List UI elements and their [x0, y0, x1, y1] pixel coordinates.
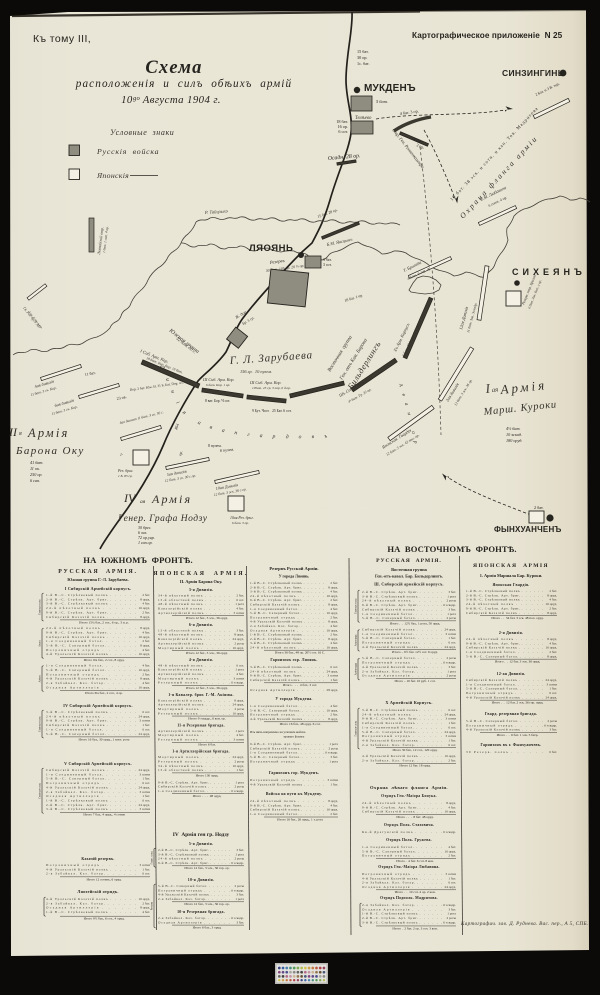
svg-text:ЛЯОЯНЬ: ЛЯОЯНЬ [249, 243, 293, 254]
svg-text:Армія: Армія [27, 426, 70, 440]
svg-text:Сибирскій Казачій полкъ . .: Сибирскій Казачій полкъ . . . . . . [466, 611, 543, 615]
svg-text:5-й В.-С. Саперный батал. . .: 5-й В.-С. Саперный батал. . . . . . . [46, 732, 136, 736]
svg-text:24 оруд.: 24 оруд. [139, 732, 151, 736]
svg-text:Осадная Артиллерія . . . .: Осадная Артиллерія . . . . . . [250, 688, 324, 692]
svg-text:Кв-й Драгунскій полкъ . . .: Кв-й Драгунскій полкъ . . . . . . [362, 830, 442, 834]
svg-text:Армія: Армія [151, 492, 192, 506]
svg-text:Ляохейскій отрядъ.: Ляохейскій отрядъ. [77, 889, 118, 894]
svg-text:Гвард. резервная бригада.: Гвард. резервная бригада. [485, 712, 537, 716]
svg-text:2-я Забайкал. Каз. батар. . .: 2-я Забайкал. Каз. батар. . . . . . . [158, 897, 230, 901]
svg-text:Рез. бриг.: Рез. бриг. [117, 469, 133, 473]
svg-text:Главныя силы: Главныя силы [355, 598, 358, 614]
svg-text:39 Резерв. полкъ . . . . .: 39 Резерв. полкъ . . . . . . [466, 750, 543, 754]
svg-text:1-й В.-С. Стрѣлковый полкъ .: 1-й В.-С. Стрѣлковый полкъ . . . . . . [46, 910, 136, 914]
svg-text:2-я Дивизія.: 2-я Дивизія. [499, 631, 523, 635]
svg-text:4-я Дивизія.: 4-я Дивизія. [189, 658, 213, 662]
svg-text:У города Мукдена.: У города Мукдена. [275, 697, 312, 701]
svg-text:4-й Уральскій Казачій полкъ .: 4-й Уральскій Казачій полкъ . . . . . . [362, 645, 442, 649]
svg-text:6 эскадр.: 6 эскадр. [231, 681, 244, 685]
svg-text:Пограничный отрядъ . . . .: Пограничный отрядъ . . . . . . [250, 759, 324, 763]
svg-text:8 оруд.: 8 оруд. [140, 615, 150, 619]
svg-text:расположенія и силъ обѣихъ: расположенія и силъ обѣихъ армій [75, 78, 292, 90]
svg-text:У города Ляоянь.: У города Ляоянь. [279, 575, 310, 579]
svg-text:Южная группа Г.-Л. Зарубаева.: Южная группа Г.-Л. Зарубаева. [67, 577, 128, 582]
svg-text:Итого . . 12 бат. 2 эск. 36: Итого . . 12 бат. 2 эск. 36 гор. оруд. [492, 701, 544, 705]
svg-text:Итого . . . 8 бат. 48 оруд.: Итого . . . 8 бат. 48 оруд. [396, 815, 433, 819]
svg-text:4 бат.: 4 бат. [142, 910, 150, 914]
svg-text:Итого . 2 бат. 2 ор. 3 сот. 3: Итого . 2 бат. 2 ор. 3 сот. 3 кон. [392, 926, 437, 930]
svg-text:6 сот.: 6 сот. [338, 129, 348, 134]
svg-text:Главныя силы: Главныя силы [39, 599, 42, 615]
svg-text:10ᵍᵒ Августа 1904 г.: 10ᵍᵒ Августа 1904 г. [121, 94, 221, 106]
svg-text:3-й В.-С. Стрѣлковый полкъ .: 3-й В.-С. Стрѣлковый полкъ . . . . . . [46, 807, 136, 811]
svg-text:Ген.-отъ-кавал. Бар. Бильдерли: Ген.-отъ-кавал. Бар. Бильдерлингъ. [375, 574, 443, 579]
svg-text:СИХЕЯНЪ: СИХЕЯНЪ [512, 267, 586, 277]
svg-text:Главныя силы: Главныя силы [39, 716, 42, 732]
svg-text:5-й В.-С. Саперный батал. . .: 5-й В.-С. Саперный батал. . . . . . . [362, 616, 442, 620]
svg-text:Итого 12 бат. 18 оруд.: Итого 12 бат. 18 оруд. [399, 764, 431, 768]
svg-text:1 Б. 83 ср.: 1 Б. 83 ср. [118, 474, 133, 478]
svg-text:2 роты: 2 роты [446, 616, 456, 620]
svg-text:6 эскадр.: 6 эскадр. [231, 861, 244, 865]
svg-text:1 бат.: 1 бат. [236, 768, 244, 772]
svg-text:16 оруд.: 16 оруд. [327, 646, 339, 650]
svg-text:2-я Забайкал. Каз. батар. . .: 2-я Забайкал. Каз. батар. . . . . . . [362, 743, 442, 747]
svg-text:3 бат.: 3 бат. [236, 920, 244, 924]
svg-text:Резервный полкъ . . . . .: Резервный полкъ . . . . . . [158, 711, 230, 715]
svg-text:РУССКАЯ АРМІЯ.: РУССКАЯ АРМІЯ. [376, 558, 442, 564]
svg-text:1 рота: 1 рота [329, 759, 338, 763]
svg-text:ая: ая [491, 386, 498, 394]
svg-text:41 бат.: 41 бат. [30, 460, 44, 465]
svg-text:6 эскадр.: 6 эскадр. [443, 830, 456, 834]
svg-text:2-я Забайкал. Каз. батар. . .: 2-я Забайкал. Каз. батар. . . . . . . [46, 872, 136, 876]
svg-text:4-й Уральскій Казачій полкъ .: 4-й Уральскій Казачій полкъ . . . . . . [466, 695, 543, 699]
svg-text:24 оруд.: 24 оруд. [546, 695, 558, 699]
svg-text:Картографич. зав. Д. Руднева.: Картографич. зав. Д. Руднева. Вас. пер.,… [460, 920, 588, 927]
svg-text:16 оруд.: 16 оруд. [233, 711, 245, 715]
svg-text:Отрядъ Полк. Стаховича.: Отрядъ Полк. Стаховича. [384, 823, 434, 827]
svg-text:ая: ая [140, 499, 146, 505]
svg-text:13-й областной полкъ . . .: 13-й областной полкъ . . . . . . [158, 768, 230, 772]
svg-text:1 рота: 1 рота [235, 897, 244, 901]
svg-text:10 эскад.: 10 эскад. [506, 432, 522, 437]
svg-text:24-й пѣхотный полкъ . . . .: 24-й пѣхотный полкъ . . . . . . [250, 646, 324, 650]
svg-text:8 оруд.: 8 оруд. [328, 717, 338, 721]
svg-text:Отрядъ Ген.-Маіора Любавина.: Отрядъ Ген.-Маіора Любавина. [378, 865, 440, 869]
svg-text:Генер. Графа Нодзу: Генер. Графа Нодзу [117, 513, 208, 524]
svg-text:5 бат.: 5 бат. [376, 99, 388, 104]
svg-text:1-я Соединенный батал. . . .: 1-я Соединенный батал. . . . . . . [250, 812, 324, 816]
svg-text:Казачій резервъ.: Казачій резервъ. [81, 857, 114, 861]
svg-text:3-й В.-С. Стрѣлковый полкъ .: 3-й В.-С. Стрѣлковый полкъ . . . . . . [362, 920, 442, 924]
svg-text:28 оруд.: 28 оруд. [327, 688, 339, 692]
svg-text:Войска на пути къ Мукдену.: Войска на пути къ Мукдену. [266, 792, 322, 796]
svg-text:8 пулем.: 8 пулем. [208, 444, 222, 448]
svg-text:3 бат.: 3 бат. [323, 258, 332, 262]
svg-text:16 оруд.: 16 оруд. [233, 646, 245, 650]
svg-text:ЯПОНСКАЯ АРМІЯ: ЯПОНСКАЯ АРМІЯ [473, 563, 549, 569]
svg-text:Главн. силы: Главн. силы [151, 851, 154, 864]
svg-text:Итого 130 оруд.: Итого 130 оруд. [196, 773, 219, 777]
svg-text:Итого . . 12 бат. 3 эск. 36: Итого . . 12 бат. 3 эск. 36 оруд. [495, 660, 540, 664]
svg-text:V Сибирскій Армейскій корпусъ.: V Сибирскій Армейскій корпусъ. [64, 761, 132, 766]
svg-text:6 эскадр.: 6 эскадр. [231, 789, 244, 793]
svg-text:10ая Рез. бриг.: 10ая Рез. бриг. [230, 516, 254, 520]
svg-text:4-й Уральскій Казачій полкъ .: 4-й Уральскій Казачій полкъ . . . . . . [250, 717, 324, 721]
svg-text:1с. бат.: 1с. бат. [357, 61, 370, 66]
svg-text:6 эскадр.: 6 эскадр. [443, 920, 456, 924]
svg-text:3-я Дивизія.: 3-я Дивизія. [189, 588, 213, 592]
svg-text:Ш Сиб. Арм. Кор.: Ш Сиб. Арм. Кор. [202, 377, 235, 382]
svg-text:3 сотни: 3 сотни [139, 807, 150, 811]
svg-text:Итого – 10 бат. 10 руб. 1 сот.: Итого – 10 бат. 10 руб. 1 сот. [394, 679, 435, 683]
svg-text:2 роты: 2 роты [446, 674, 456, 678]
svg-text:Японская Гвардія.: Японская Гвардія. [492, 583, 529, 587]
svg-text:Ш. Сибирскій армейскій корпусъ: Ш. Сибирскій армейскій корпусъ. [374, 582, 444, 587]
svg-text:Сибирскій Казачій полкъ . .: Сибирскій Казачій полкъ . . . . . . [362, 810, 442, 814]
svg-text:Гарнизонъ гор. Ляоянь.: Гарнизонъ гор. Ляоянь. [270, 658, 317, 662]
svg-text:Отрядъ Полк. Гружева.: Отрядъ Полк. Гружева. [386, 838, 432, 842]
svg-text:1-я Кавалер. бриг. Г.-М. Акіям: 1-я Кавалер. бриг. Г.-М. Акіямы. [168, 693, 234, 697]
svg-text:11 ок.: 11 ок. [30, 466, 40, 471]
svg-text:156 гр. 10 пулем.: 156 гр. 10 пулем. [240, 369, 272, 374]
svg-text:Итого . . 6 бат. 1 эск. 5 ба: Итого . . 6 бат. 1 эск. 5 батр. [497, 733, 539, 737]
svg-text:Аріергардъ: Аріергардъ [355, 662, 358, 675]
svg-text:9-й В.-С. Стрѣлк. Арт. бриг. .: 9-й В.-С. Стрѣлк. Арт. бриг. . . . . . . [158, 861, 230, 865]
svg-text:5-я Дивизія.: 5-я Дивизія. [189, 842, 213, 846]
svg-text:4-й Уральскій Казачій полкъ .: 4-й Уральскій Казачій полкъ . . . . . . [46, 652, 136, 656]
svg-text:Аванг.: Аванг. [39, 639, 42, 646]
svg-text:Гарнизонъ въ г. Фынхуанчевъ.: Гарнизонъ въ г. Фынхуанчевъ. [481, 743, 542, 747]
svg-text:30 ор.: 30 ор. [357, 55, 367, 60]
svg-text:Картографическое приложеніе N: Картографическое приложеніе N 25 [412, 31, 563, 40]
svg-text:Телѣево: Телѣево [355, 116, 372, 121]
svg-text:2 бат.: 2 бат. [534, 505, 544, 510]
svg-text:3 сотни: 3 сотни [233, 738, 244, 742]
svg-text:Аріерг.: Аріерг. [39, 674, 42, 682]
svg-text:Авангардъ: Авангардъ [355, 634, 358, 646]
svg-text:Итого . . . 48 оруд.: Итого . . . 48 оруд. [193, 794, 222, 798]
svg-text:Итого 6 бат.: Итого 6 бат. [198, 743, 215, 747]
svg-text:Х Армейскій Корпусъ.: Х Армейскій Корпусъ. [385, 700, 432, 705]
svg-text:1. Армія Маршала Бар. Куроки.: 1. Армія Маршала Бар. Куроки. [480, 573, 543, 578]
svg-text:6 сот.: 6 сот. [448, 743, 456, 747]
svg-text:Осадная Артиллерія . . . .: Осадная Артиллерія . . . . . . [46, 685, 136, 689]
svg-text:4½ бат.: 4½ бат. [506, 426, 521, 431]
svg-text:180 оруд.: 180 оруд. [506, 438, 522, 443]
svg-text:16 оруд.: 16 оруд. [445, 810, 457, 814]
svg-text:МУКДЕНЪ: МУКДЕНЪ [364, 83, 416, 94]
svg-text:6 бат. 3 ор.: 6 бат. 3 ор. [232, 521, 249, 525]
svg-text:6 бат. Кор. 1 ор.: 6 бат. Кор. 1 ор. [206, 383, 230, 387]
svg-text:3 сотни: 3 сотни [233, 611, 244, 615]
svg-text:Восточная группа: Восточная группа [391, 567, 428, 572]
svg-text:15 бат.: 15 бат. [357, 49, 369, 54]
svg-text:3 сот.: 3 сот. [323, 263, 332, 267]
svg-text:Схема: Схема [145, 58, 202, 78]
svg-text:6 бат.: 6 бат. [549, 750, 557, 754]
svg-text:Изъ нихъ направлено на усилені: Изъ нихъ направлено на усиленіе войскъ [250, 730, 306, 734]
svg-text:Сибирскій Казачій полкъ . .: Сибирскій Казачій полкъ . . . . . . [46, 615, 136, 619]
svg-text:Ш Сиб. Арм. Кор.: Ш Сиб. Арм. Кор. [249, 380, 282, 385]
svg-text:4-й Уральскій Казачій полкъ .: 4-й Уральскій Казачій полкъ . . . . . . [250, 782, 324, 786]
svg-text:1-я Артиллерійская бригада.: 1-я Артиллерійская бригада. [172, 750, 230, 754]
svg-text:Условные знаки: Условные знаки [110, 128, 174, 137]
svg-text:10-я Дивизія.: 10-я Дивизія. [188, 878, 215, 882]
svg-text:ЯПОНСКАЯ АРМІЯ.: ЯПОНСКАЯ АРМІЯ. [153, 571, 248, 577]
svg-text:6-я Дивизія.: 6-я Дивизія. [189, 623, 213, 627]
svg-text:Осадная Артиллерія . . . .: Осадная Артиллерія . . . . . . [158, 920, 230, 924]
svg-text:2 бат.: 2 бат. [448, 759, 456, 763]
svg-text:5-й В.-С. Саперный батал. . .: 5-й В.-С. Саперный батал. . . . . . . [466, 654, 543, 658]
svg-text:Гарнизонъ гор. Мукденъ.: Гарнизонъ гор. Мукденъ. [269, 771, 319, 775]
svg-text:12-ая Дивизія.: 12-ая Дивизія. [497, 672, 526, 676]
svg-text:Итого . 4 бат. 6 сот. 8 кон.: Итого . 4 бат. 6 сот. 8 кон. [396, 859, 434, 863]
svg-text:праваго фланга: праваго фланга [284, 735, 305, 739]
svg-text:16 оруд.: 16 оруд. [139, 652, 151, 656]
svg-text:я: я [18, 431, 22, 437]
svg-text:Отрядъ Ген.-Маіора Бонука.: Отрядъ Ген.-Маіора Бонука. [381, 794, 437, 798]
svg-text:Охрана лѣваго фланга Арміи.: Охрана лѣваго фланга Арміи. [370, 785, 448, 790]
svg-text:2 бат.: 2 бат. [330, 812, 338, 816]
svg-text:24 оруд.: 24 оруд. [445, 885, 457, 889]
svg-text:10-я Резервная бригада.: 10-я Резервная бригада. [177, 910, 225, 914]
svg-text:II. Армія Барона Оку.: II. Армія Барона Оку. [180, 579, 222, 584]
svg-text:105ат. 25 ср. 3 пор. 6 д.ор.: 105ат. 25 ср. 3 пор. 6 д.ор. [252, 386, 291, 390]
svg-text:IV Сибирскій Армейскій корпусъ: IV Сибирскій Армейскій корпусъ. [63, 703, 132, 708]
svg-text:Мортирный полкъ . . . . .: Мортирный полкъ . . . . . . [158, 646, 230, 650]
svg-text:Отрядъ Подполк. Мадритова.: Отрядъ Подполк. Мадритова. [380, 896, 438, 900]
svg-text:Артиллерійскій полкъ . . .: Артиллерійскій полкъ . . . . . . [158, 611, 230, 615]
svg-text:Итого – 9½ бат. 12½ сот. 6 ору: Итого – 9½ бат. 12½ сот. 6 оруд. [392, 650, 438, 654]
svg-text:16 оруд.: 16 оруд. [139, 685, 151, 689]
svg-text:РУССКАЯ АРМІЯ.: РУССКАЯ АРМІЯ. [58, 569, 137, 575]
svg-text:4-й Уральскій Казачій полкъ .: 4-й Уральскій Казачій полкъ . . . . . . [466, 728, 543, 732]
svg-text:250 ор.: 250 ор. [30, 472, 43, 477]
svg-text:Резервный полкъ . . . . .: Резервный полкъ . . . . . . [158, 738, 230, 742]
svg-text:Японскія: Японскія [96, 171, 129, 180]
svg-text:2 бат.: 2 бат. [448, 854, 456, 858]
svg-text:8 оруд.: 8 оруд. [547, 654, 557, 658]
svg-text:ФЫНХУАНЧЕНЪ: ФЫНХУАНЧЕНЪ [494, 525, 562, 534]
svg-text:Барона Оку: Барона Оку [15, 445, 85, 457]
svg-text:I Сибирскій Армейскій корпусъ.: I Сибирскій Армейскій корпусъ. [65, 586, 131, 591]
svg-text:Главныя силы: Главныя силы [39, 783, 42, 799]
svg-text:Къ тому III,: Къ тому III, [33, 33, 91, 45]
svg-text:Сибирскій Казачій полкъ . .: Сибирскій Казачій полкъ . . . . . . [250, 678, 324, 682]
svg-text:IV Армія ген гр. Нодзу: IV Армія ген гр. Нодзу [173, 832, 230, 838]
svg-text:1 сап.ор.: 1 сап.ор. [138, 540, 153, 545]
svg-text:2-я Забайкал. Каз. батар. . .: 2-я Забайкал. Каз. батар. . . . . . . [362, 759, 442, 763]
svg-text:11-я Резервная бригада.: 11-я Резервная бригада. [177, 723, 225, 727]
svg-text:Резервъ Русской Арміи.: Резервъ Русской Арміи. [269, 566, 318, 571]
svg-text:3 бат.: 3 бат. [549, 728, 557, 732]
svg-text:НА ВОСТОЧНОМЪ ФРОНТѢ.: НА ВОСТОЧНОМЪ ФРОНТѢ. [387, 544, 516, 554]
svg-text:Резервъ: Резервъ [151, 901, 154, 910]
svg-text:Итого . . 10 сот. 4 ор. 2 ко: Итого . . 10 сот. 4 ор. 2 кон. [395, 890, 436, 894]
svg-text:1-я Соединенный батал. . . .: 1-я Соединенный батал. . . . . . . [158, 789, 230, 793]
svg-text:НА ЮЖНОМЪ ФРОНТѢ.: НА ЮЖНОМЪ ФРОНТѢ. [83, 555, 192, 565]
svg-text:Русскія войска: Русскія войска [96, 147, 159, 156]
svg-text:1 бат.: 1 бат. [330, 782, 338, 786]
svg-text:8 ват. Бор. Ч сот.: 8 ват. Бор. Ч сот. [205, 399, 230, 403]
svg-text:8 оруд.: 8 оруд. [547, 611, 557, 615]
svg-text:Резервный полкъ . . . . .: Резервный полкъ . . . . . . [158, 681, 230, 685]
svg-text:Главныя силы: Главныя силы [355, 721, 358, 737]
svg-text:Пограничный отрядъ . . . .: Пограничный отрядъ . . . . . . [362, 854, 442, 858]
svg-text:24 оруд.: 24 оруд. [445, 645, 457, 649]
svg-text:II: II [8, 425, 18, 439]
svg-text:9 Бут. Чсот. 25 Бат. 6 сот.: 9 Бут. Чсот. 25 Бат. 6 сот. [252, 409, 292, 413]
svg-text:6 сап.: 6 сап. [30, 478, 40, 483]
svg-text:IV: IV [123, 491, 137, 505]
svg-text:СИНЗИНГИНЬ: СИНЗИНГИНЬ [502, 68, 564, 78]
svg-text:6 сот.: 6 сот. [142, 872, 150, 876]
svg-text:1 бат.: 1 бат. [330, 678, 338, 682]
svg-text:Итого . . 54 бат. 3 эск. 48: Итого . . 54 бат. 3 эск. 48 пол. оруд. [491, 616, 543, 620]
